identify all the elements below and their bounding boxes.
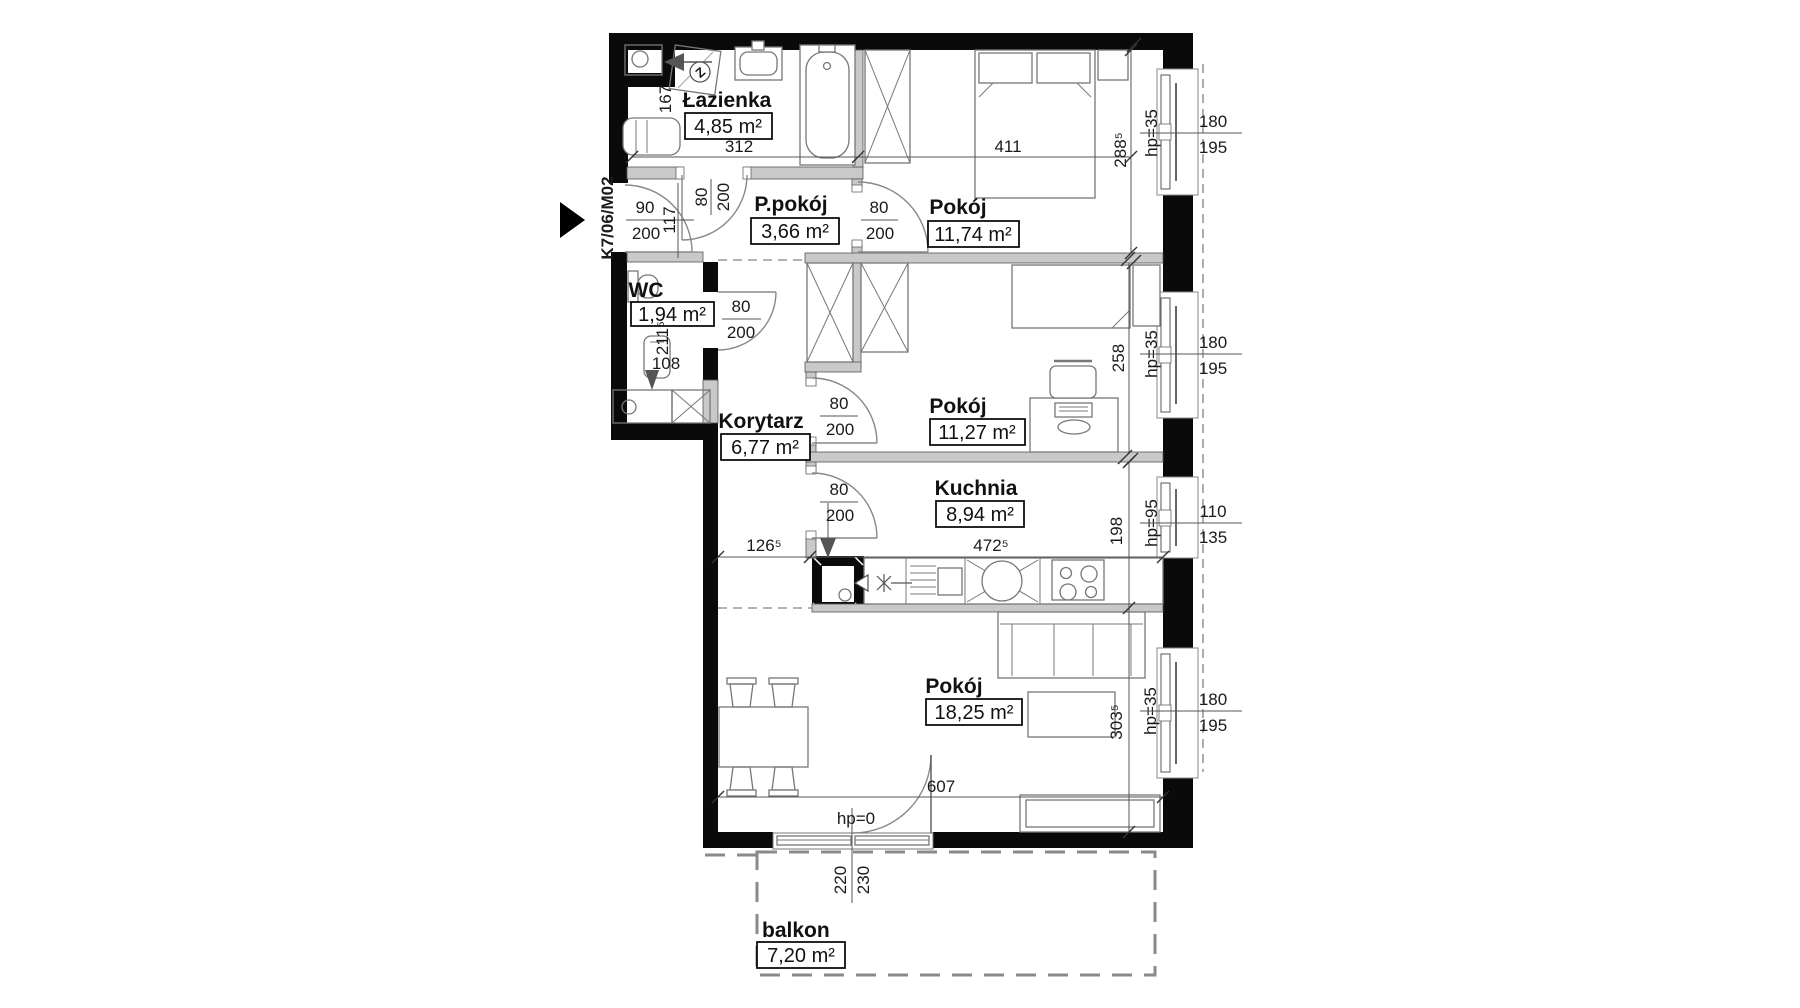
dim-room-a-door-w: 80	[870, 198, 889, 217]
window-1	[1157, 69, 1198, 195]
desk-chair	[1050, 361, 1096, 398]
bathtub	[800, 45, 855, 165]
dim-wc-depth: 211⁵	[653, 321, 672, 355]
stove-icon	[1052, 560, 1104, 600]
dimension-labels: 312 411 288⁵ 167 80 200 90 200 117 80 20…	[626, 85, 1130, 894]
entrance-arrow-icon	[560, 202, 585, 238]
dim-room-a-width: 411	[994, 137, 1021, 156]
floor-plan-page: Z	[0, 0, 1800, 1008]
window-1-h2: 195	[1199, 138, 1227, 157]
dim-balcony-door-h: 230	[854, 866, 873, 894]
area-balkon: 7,20 m²	[767, 945, 835, 967]
dim-kitchen-width: 472⁵	[973, 536, 1008, 555]
double-bed	[975, 50, 1095, 198]
window-2-h2: 195	[1199, 359, 1227, 378]
dim-balcony-door-w: 220	[831, 866, 850, 894]
chair	[769, 767, 798, 796]
dim-wc-width: 108	[652, 354, 680, 373]
sofa	[998, 612, 1145, 678]
dim-entry-h: 200	[632, 224, 660, 243]
washing-machine	[623, 118, 680, 155]
wardrobe-hall	[807, 263, 853, 362]
window-2-h1: 180	[1199, 333, 1227, 352]
dim-bath-door-w: 80	[692, 188, 711, 207]
dim-kitchen-door-w: 80	[830, 480, 849, 499]
dim-room-c-depth: 303⁵	[1107, 704, 1126, 739]
dim-room-b-door-w: 80	[830, 394, 849, 413]
chair	[727, 678, 756, 707]
room-name-kuchnia: Kuchnia	[935, 477, 1018, 500]
room-name-pokoj-c: Pokój	[925, 675, 982, 698]
dim-room-b-door-h: 200	[826, 420, 854, 439]
coffee-table	[1028, 692, 1115, 737]
area-kuchnia: 8,94 m²	[946, 504, 1014, 526]
desk	[1030, 398, 1118, 452]
kitchen-counter	[855, 558, 1163, 604]
dining-table	[719, 707, 808, 767]
wardrobe-a	[865, 50, 910, 163]
window-4-h1: 180	[1199, 690, 1227, 709]
room-name-lazienka: Łazienka	[683, 89, 772, 112]
area-pokoj-b: 11,27 m²	[938, 422, 1016, 444]
dim-wc-door-w: 80	[732, 297, 751, 316]
unit-id-label: K7/06/M02	[598, 176, 617, 259]
area-korytarz: 6,77 m²	[731, 437, 799, 459]
balcony-door	[773, 755, 933, 849]
dim-wc-door-h: 200	[727, 323, 755, 342]
area-pokoj-c: 18,25 m²	[935, 702, 1014, 724]
chair	[727, 767, 756, 796]
dim-room-a-door-h: 200	[866, 224, 894, 243]
wc-drain-arrow-icon	[645, 370, 659, 390]
chair	[769, 678, 798, 707]
tv-bench	[1020, 795, 1160, 832]
wardrobe-room-b	[861, 263, 908, 352]
area-ppokoj: 3,66 m²	[761, 221, 829, 243]
window-2	[1157, 292, 1198, 418]
window-3-h1: 110	[1199, 502, 1226, 521]
room-name-pokoj-a: Pokój	[929, 196, 986, 219]
bathroom-sink	[735, 41, 782, 80]
window-1-h1: 180	[1199, 112, 1227, 131]
dim-bath-side: 167	[656, 85, 675, 113]
dim-kitchen-depth: 198	[1107, 517, 1126, 545]
balcony-door-hp: hp=0	[837, 809, 875, 828]
dim-kitchen-door-h: 200	[826, 506, 854, 525]
area-pokoj-a: 11,74 m²	[934, 224, 1012, 246]
room-name-balkon: balkon	[762, 919, 830, 942]
room-name-wc: WC	[629, 279, 664, 302]
room-name-pokoj-b: Pokój	[929, 395, 986, 418]
area-wc: 1,94 m²	[638, 304, 706, 326]
dim-room-a-depth: 288⁵	[1111, 132, 1130, 167]
area-lazienka: 4,85 m²	[694, 116, 762, 138]
dim-room-b-depth: 258	[1109, 344, 1128, 372]
dim-bath-door-h: 200	[714, 183, 733, 211]
dim-entry-side: 117	[660, 206, 679, 233]
window-4	[1157, 648, 1198, 778]
window-4-h2: 195	[1199, 716, 1227, 735]
sink-icon	[967, 560, 1038, 602]
nightstand-b	[1133, 265, 1160, 326]
dim-bath-width: 312	[725, 137, 753, 156]
room-name-ppokoj: P.pokój	[754, 193, 827, 216]
room-name-korytarz: Korytarz	[718, 410, 803, 433]
dim-room-c-width: 607	[927, 777, 955, 796]
dim-entry-w: 90	[636, 198, 655, 217]
kitchen-entry-arrow-icon	[820, 538, 836, 558]
dim-hall-width: 126⁵	[746, 536, 781, 555]
dishwasher-icon	[910, 566, 962, 595]
floor-plan-drawing: Z	[0, 0, 1800, 1008]
nightstand-a	[1098, 50, 1128, 80]
window-3-h2: 135	[1199, 528, 1227, 547]
single-bed	[1012, 265, 1130, 328]
window-3-kitchen	[1157, 477, 1198, 558]
